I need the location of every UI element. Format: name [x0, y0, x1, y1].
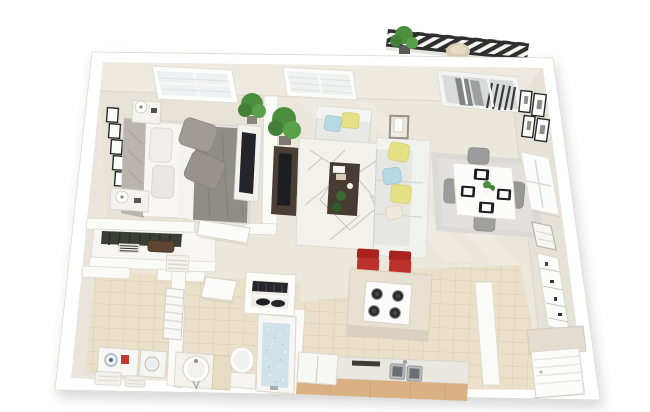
yellow-pillow — [341, 112, 359, 128]
dark-towels — [252, 281, 288, 293]
dining-chair-top — [468, 147, 490, 164]
white-pillow — [151, 165, 175, 198]
plant-foliage — [238, 103, 252, 117]
bowl — [347, 183, 353, 189]
laundry-north-wall — [82, 266, 130, 279]
plant-foliage — [283, 121, 301, 139]
television — [277, 153, 292, 206]
bathroom-door-open — [201, 277, 237, 301]
cream-pillow — [385, 204, 403, 220]
toilet-tank — [230, 372, 256, 389]
lamp-shade — [394, 118, 403, 132]
folded-towels — [119, 244, 139, 253]
art-frame — [109, 124, 121, 139]
dryer-door — [145, 357, 159, 371]
toilet-seat — [234, 351, 250, 369]
blue-pillow — [324, 115, 342, 132]
yellow-pillow — [387, 141, 410, 163]
bathtub — [256, 314, 296, 394]
plate — [463, 188, 472, 196]
shelf-item — [550, 280, 554, 283]
plant-foliage — [268, 120, 284, 136]
shelf-item — [545, 262, 548, 266]
yellow-pillow — [390, 184, 412, 204]
cooktop — [363, 281, 412, 325]
vanity-cabinet — [212, 355, 232, 390]
sliding-glass-door — [437, 70, 523, 113]
living-window — [283, 67, 357, 100]
bathroom-north-wall — [185, 271, 205, 282]
basket — [125, 376, 145, 388]
kitchen-island — [346, 269, 432, 342]
duffel-bag — [148, 240, 175, 252]
dryer — [139, 350, 167, 378]
dresser-with-tv — [234, 124, 262, 202]
clock — [151, 108, 157, 113]
nightstand-right — [110, 188, 149, 212]
tv-console — [271, 146, 299, 216]
blue-pillow — [382, 167, 402, 185]
plate — [482, 204, 491, 212]
door-knob — [539, 370, 542, 373]
tub-faucet — [270, 386, 278, 390]
entry — [527, 326, 586, 398]
shelf-item — [558, 313, 562, 316]
sofa — [373, 138, 430, 258]
plate — [499, 191, 508, 199]
television — [239, 132, 256, 194]
plate — [477, 171, 486, 179]
bedroom-window — [152, 66, 238, 103]
pot — [271, 300, 285, 307]
towel-niche — [244, 272, 296, 316]
plant-foliage — [406, 37, 418, 49]
plant-pot — [247, 116, 257, 124]
art-print — [524, 96, 529, 104]
pot — [256, 298, 270, 305]
detergent-box — [121, 355, 129, 364]
basket — [95, 372, 121, 386]
cutting-board — [352, 361, 380, 367]
shelf-item — [554, 297, 557, 301]
floor-plan-render: 3D rendered one-bedroom apartment floor … — [0, 0, 650, 412]
coffee-table — [327, 162, 360, 216]
art-frame — [111, 140, 123, 155]
vanity — [174, 352, 232, 390]
balcony-chair-cushion — [450, 45, 466, 55]
nightstand-left — [132, 100, 161, 124]
books — [336, 174, 346, 180]
plant-foliage — [390, 35, 402, 47]
faucet — [194, 359, 198, 363]
plant-foliage — [252, 104, 266, 118]
white-pillow — [149, 127, 173, 162]
decor-item — [134, 198, 141, 203]
floor-plan-svg: 3D rendered one-bedroom apartment floor … — [0, 0, 650, 412]
table-plant — [336, 191, 346, 201]
bowl — [482, 188, 492, 194]
towel-cabinet — [166, 255, 189, 272]
louvered-window — [163, 288, 184, 340]
table-plant — [332, 202, 342, 212]
books — [333, 166, 345, 173]
art-frame — [107, 108, 119, 123]
faucet — [403, 360, 407, 364]
tub-water — [261, 322, 290, 388]
